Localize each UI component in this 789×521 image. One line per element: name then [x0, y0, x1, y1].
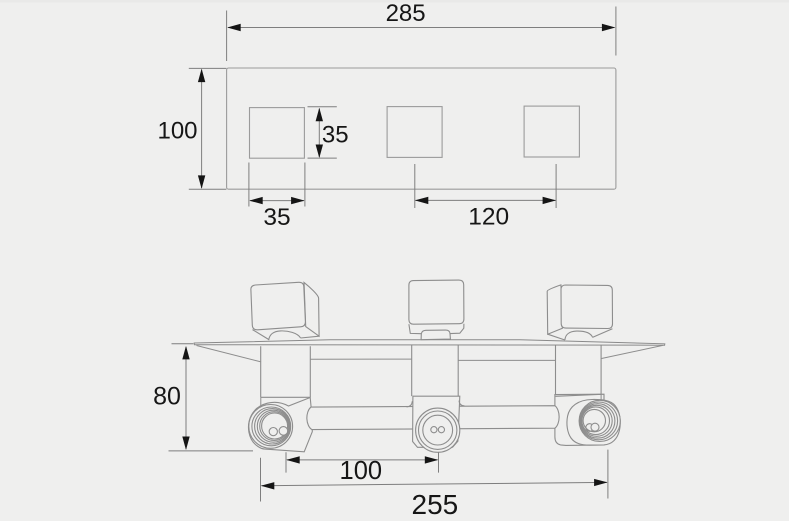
svg-text:255: 255	[412, 489, 459, 520]
svg-text:80: 80	[153, 383, 181, 411]
svg-text:35: 35	[263, 204, 290, 231]
svg-text:120: 120	[468, 204, 509, 231]
svg-text:285: 285	[386, 0, 426, 27]
svg-text:100: 100	[157, 117, 197, 144]
svg-text:35: 35	[322, 122, 349, 149]
svg-text:100: 100	[340, 457, 383, 485]
